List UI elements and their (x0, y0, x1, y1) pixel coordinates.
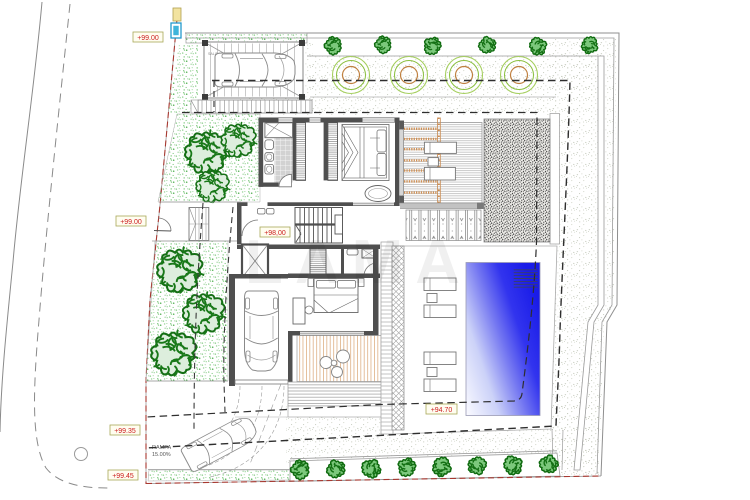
svg-text:+99.00: +99.00 (120, 219, 142, 226)
svg-text:+99.45: +99.45 (112, 473, 134, 480)
svg-text:+99.35: +99.35 (114, 428, 136, 435)
svg-text:LAMA: LAMA (245, 228, 472, 297)
svg-text:15.00%: 15.00% (152, 452, 171, 458)
svg-text:+94.70: +94.70 (431, 407, 453, 414)
svg-text:+99.00: +99.00 (137, 35, 159, 42)
